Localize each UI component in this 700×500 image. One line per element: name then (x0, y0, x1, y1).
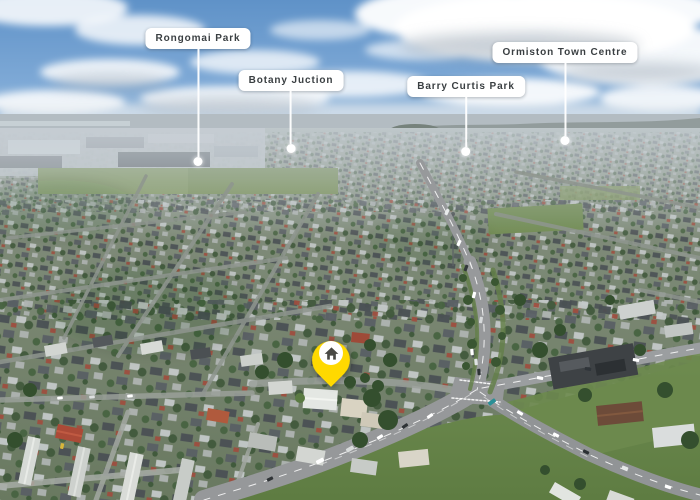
aerial-photo: Rongomai Park Botany Juction Barry Curti… (0, 0, 700, 500)
house-icon (324, 347, 339, 360)
landmark-botany-junction: Botany Juction (239, 70, 344, 153)
leader-line (290, 91, 292, 144)
landmark-rongomai-park: Rongomai Park (145, 28, 250, 166)
leader-line (465, 97, 467, 147)
location-dot (560, 136, 569, 145)
landmark-label: Ormiston Town Centre (492, 42, 637, 63)
location-dot (194, 157, 203, 166)
leader-line (197, 49, 199, 157)
location-dot (462, 147, 471, 156)
landmark-ormiston-town-centre: Ormiston Town Centre (492, 42, 637, 145)
landmark-label: Rongomai Park (145, 28, 250, 49)
landmark-label: Botany Juction (239, 70, 344, 91)
pin-circle (319, 341, 343, 365)
leader-line (564, 63, 566, 136)
location-dot (286, 144, 295, 153)
